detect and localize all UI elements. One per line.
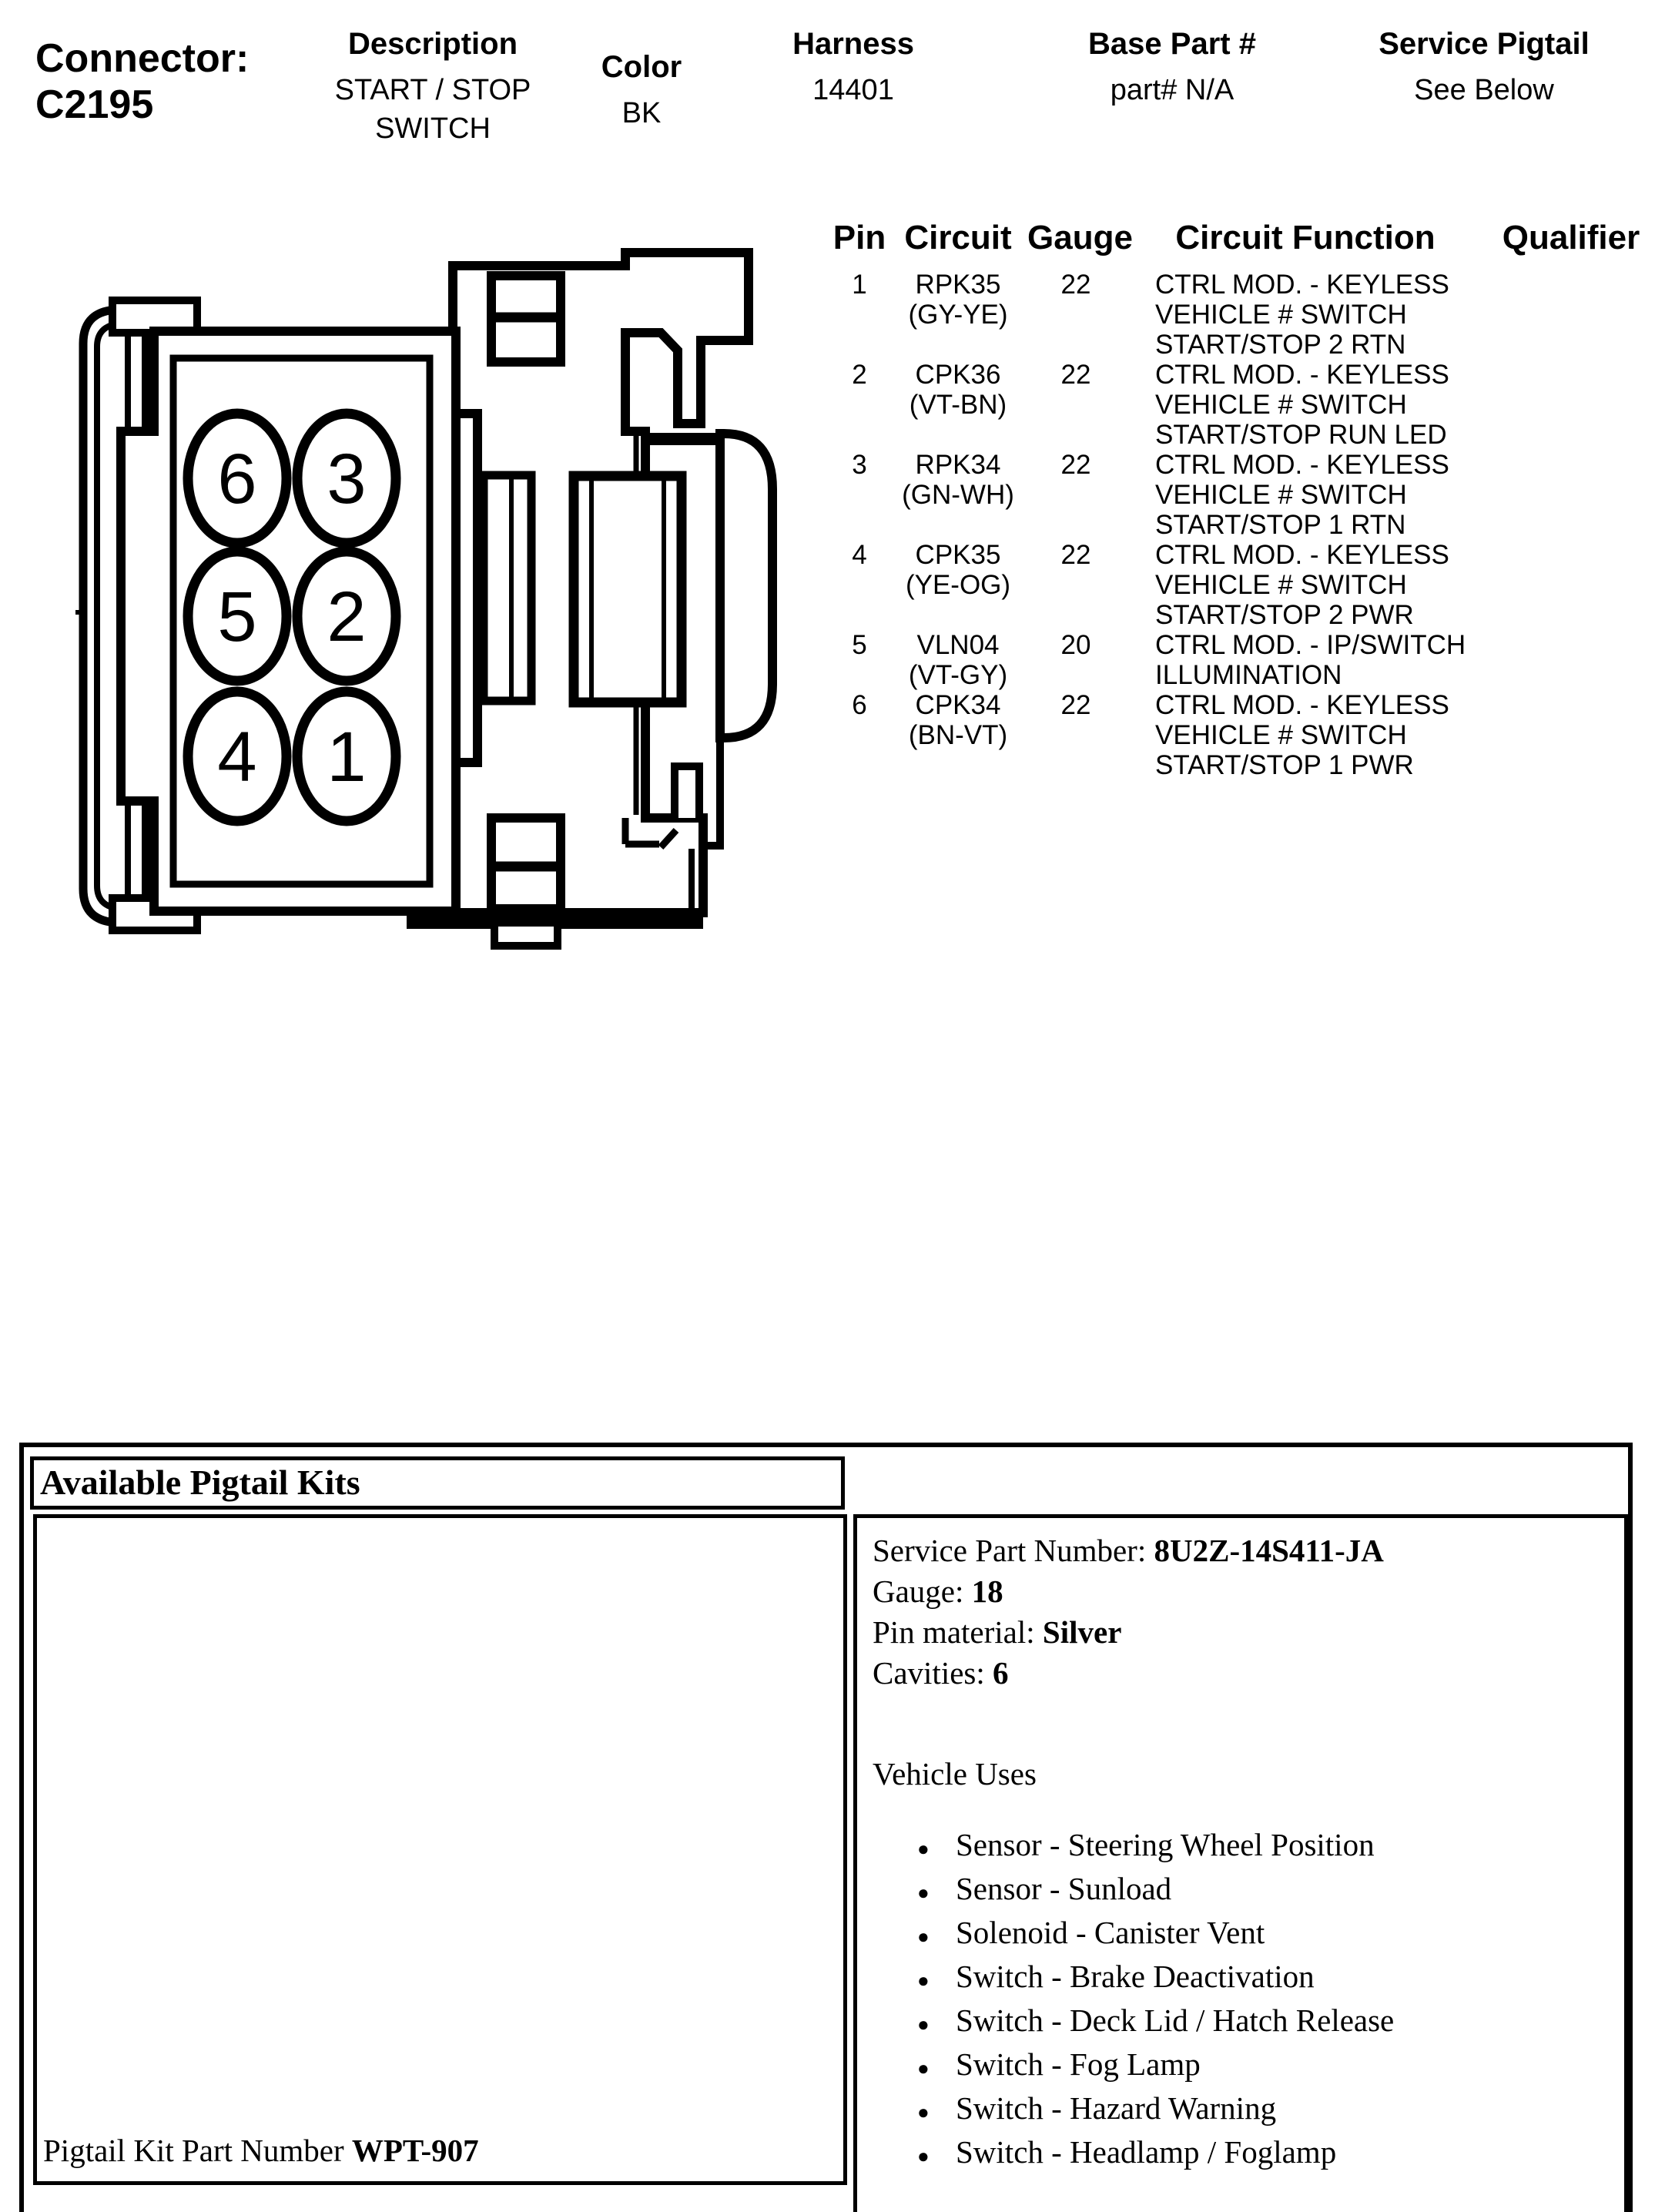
vehicle-use-text: Sensor - Sunload: [956, 1867, 1171, 1911]
vehicle-uses-heading: Vehicle Uses: [873, 1754, 1624, 1795]
vehicle-use-text: Switch - Hazard Warning: [956, 2086, 1276, 2130]
pigtail-title: Available Pigtail Kits: [34, 1460, 841, 1504]
harness-value: 14401: [812, 71, 894, 109]
qualifier-cell: [1486, 270, 1656, 360]
header-col-base-part: Base Part # part# N/A: [1060, 26, 1284, 109]
pigtail-kit-part-number: Pigtail Kit Part Number WPT-907: [43, 2132, 479, 2169]
function-cell: CTRL MOD. - KEYLESS VEHICLE # SWITCH STA…: [1124, 360, 1486, 450]
kit-label: Pigtail Kit Part Number: [43, 2133, 352, 2168]
gauge-cell: 22: [1027, 450, 1124, 540]
pin-material-line: Pin material: Silver: [873, 1612, 1624, 1653]
connector-id: C2195: [35, 82, 153, 127]
pin-cell: 6: [830, 690, 889, 780]
table-row: 4 CPK35 (YE-OG) 22 CTRL MOD. - KEYLESS V…: [830, 540, 1656, 630]
gauge-cell: 22: [1027, 360, 1124, 450]
vehicle-use-text: Switch - Fog Lamp: [956, 2043, 1201, 2086]
bullet-icon: ●: [917, 1959, 956, 2003]
cavities-label: Cavities:: [873, 1655, 993, 1691]
pin-number-4: 4: [217, 718, 256, 796]
circuit-cell: RPK34 (GN-WH): [889, 450, 1027, 540]
bullet-icon: ●: [917, 1915, 956, 1959]
header-col-color: Color BK: [568, 49, 715, 132]
function-cell: CTRL MOD. - IP/SWITCH ILLUMINATION: [1124, 630, 1486, 690]
gauge-line: Gauge: 18: [873, 1571, 1624, 1612]
list-item: ●Switch - Fog Lamp: [917, 2043, 1624, 2086]
base-part-label: Base Part #: [1088, 26, 1256, 62]
service-part-number-line: Service Part Number: 8U2Z-14S411-JA: [873, 1530, 1624, 1571]
connector-diagram: 6 3 5 2 4 1: [46, 231, 789, 951]
connector-diagram-svg: 6 3 5 2 4 1: [46, 231, 789, 951]
pin-table: Pin Circuit Gauge Circuit Function Quali…: [830, 219, 1656, 780]
list-item: ●Sensor - Steering Wheel Position: [917, 1823, 1624, 1867]
list-item: ●Sensor - Sunload: [917, 1867, 1624, 1911]
pin-cell: 1: [830, 270, 889, 360]
gauge-cell: 22: [1027, 270, 1124, 360]
circuit-cell: CPK35 (YE-OG): [889, 540, 1027, 630]
clip-bump: [720, 434, 772, 738]
function-cell: CTRL MOD. - KEYLESS VEHICLE # SWITCH STA…: [1124, 690, 1486, 780]
side-bottom-foot: [494, 923, 558, 946]
table-row: 3 RPK34 (GN-WH) 22 CTRL MOD. - KEYLESS V…: [830, 450, 1656, 540]
vehicle-uses-list: ●Sensor - Steering Wheel Position ●Senso…: [873, 1823, 1624, 2174]
table-row: 2 CPK36 (VT-BN) 22 CTRL MOD. - KEYLESS V…: [830, 360, 1656, 450]
color-value: BK: [622, 94, 662, 132]
header-col-description: Description START / STOP SWITCH: [317, 26, 548, 148]
side-bottom-finger: [675, 766, 699, 818]
connector-pinout-sheet: Connector: C2195 Description START / STO…: [0, 0, 1665, 2212]
list-item: ●Switch - Deck Lid / Hatch Release: [917, 1999, 1624, 2043]
description-value: START / STOP SWITCH: [335, 71, 531, 148]
service-part-box: Service Part Number: 8U2Z-14S411-JA Gaug…: [853, 1514, 1628, 2212]
table-row: 6 CPK34 (BN-VT) 22 CTRL MOD. - KEYLESS V…: [830, 690, 1656, 780]
bullet-icon: ●: [917, 1871, 956, 1915]
gauge-label: Gauge:: [873, 1574, 972, 1609]
list-item: ●Solenoid - Canister Vent: [917, 1911, 1624, 1955]
cavities-line: Cavities: 6: [873, 1653, 1624, 1694]
vehicle-use-text: Sensor - Steering Wheel Position: [956, 1823, 1375, 1867]
list-item: ●Switch - Brake Deactivation: [917, 1955, 1624, 1999]
function-cell: CTRL MOD. - KEYLESS VEHICLE # SWITCH STA…: [1124, 270, 1486, 360]
service-part-number: 8U2Z-14S411-JA: [1154, 1533, 1383, 1568]
function-cell: CTRL MOD. - KEYLESS VEHICLE # SWITCH STA…: [1124, 540, 1486, 630]
connector-label: Connector:: [35, 36, 249, 81]
pin-cell: 4: [830, 540, 889, 630]
pigtail-title-box: Available Pigtail Kits: [30, 1456, 845, 1510]
qualifier-cell: [1486, 690, 1656, 780]
service-pigtail-value: See Below: [1414, 71, 1554, 109]
pin-material-label: Pin material:: [873, 1614, 1043, 1650]
connector-title: Connector: C2195: [35, 35, 249, 128]
pin-table-header: Pin Circuit Gauge Circuit Function Quali…: [830, 219, 1656, 257]
pigtail-kit-box: Pigtail Kit Part Number WPT-907: [33, 1514, 847, 2185]
table-row: 1 RPK35 (GY-YE) 22 CTRL MOD. - KEYLESS V…: [830, 270, 1656, 360]
col-header-circuit: Circuit: [889, 219, 1027, 257]
service-part-label: Service Part Number:: [873, 1533, 1154, 1568]
qualifier-cell: [1486, 360, 1656, 450]
table-row: 5 VLN04 (VT-GY) 20 CTRL MOD. - IP/SWITCH…: [830, 630, 1656, 690]
gauge-cell: 22: [1027, 690, 1124, 780]
col-header-qualifier: Qualifier: [1486, 219, 1656, 257]
list-item: ●Switch - Headlamp / Foglamp: [917, 2130, 1624, 2174]
cavities-value: 6: [993, 1655, 1009, 1691]
header-col-harness: Harness 14401: [745, 26, 961, 109]
qualifier-cell: [1486, 450, 1656, 540]
side-rail-narrow: [484, 475, 531, 701]
vehicle-use-text: Solenoid - Canister Vent: [956, 1911, 1265, 1955]
base-part-value: part# N/A: [1111, 71, 1235, 109]
col-header-gauge: Gauge: [1027, 219, 1124, 257]
circuit-cell: CPK36 (VT-BN): [889, 360, 1027, 450]
vehicle-use-text: Switch - Headlamp / Foglamp: [956, 2130, 1336, 2174]
kit-number: WPT-907: [352, 2133, 479, 2168]
bullet-icon: ●: [917, 2090, 956, 2134]
gauge-cell: 22: [1027, 540, 1124, 630]
list-item: ●Switch - Hazard Warning: [917, 2086, 1624, 2130]
pin-number-6: 6: [217, 440, 256, 518]
circuit-cell: CPK34 (BN-VT): [889, 690, 1027, 780]
col-header-pin: Pin: [830, 219, 889, 257]
pin-cell: 5: [830, 630, 889, 690]
pin-material-value: Silver: [1043, 1614, 1121, 1650]
vehicle-use-text: Switch - Deck Lid / Hatch Release: [956, 1999, 1394, 2043]
pin-number-2: 2: [327, 578, 366, 656]
qualifier-cell: [1486, 540, 1656, 630]
service-part-specs: Service Part Number: 8U2Z-14S411-JA Gaug…: [857, 1518, 1624, 2174]
vehicle-use-text: Switch - Brake Deactivation: [956, 1955, 1315, 1999]
harness-label: Harness: [792, 26, 914, 62]
pin-cell: 3: [830, 450, 889, 540]
description-label: Description: [348, 26, 518, 62]
col-header-function: Circuit Function: [1124, 219, 1486, 257]
bullet-icon: ●: [917, 2134, 956, 2178]
pin-cell: 2: [830, 360, 889, 450]
function-cell: CTRL MOD. - KEYLESS VEHICLE # SWITCH STA…: [1124, 450, 1486, 540]
pin-number-5: 5: [217, 578, 256, 656]
header-col-service-pigtail: Service Pigtail See Below: [1369, 26, 1600, 109]
circuit-cell: VLN04 (VT-GY): [889, 630, 1027, 690]
circuit-cell: RPK35 (GY-YE): [889, 270, 1027, 360]
qualifier-cell: [1486, 630, 1656, 690]
pin-number-3: 3: [327, 440, 366, 518]
bullet-icon: ●: [917, 2003, 956, 2046]
gauge-cell: 20: [1027, 630, 1124, 690]
bullet-icon: ●: [917, 2046, 956, 2090]
pin-number-1: 1: [327, 718, 366, 796]
gauge-value: 18: [972, 1574, 1003, 1609]
service-pigtail-label: Service Pigtail: [1379, 26, 1589, 62]
color-label: Color: [601, 49, 682, 85]
bullet-icon: ●: [917, 1827, 956, 1871]
